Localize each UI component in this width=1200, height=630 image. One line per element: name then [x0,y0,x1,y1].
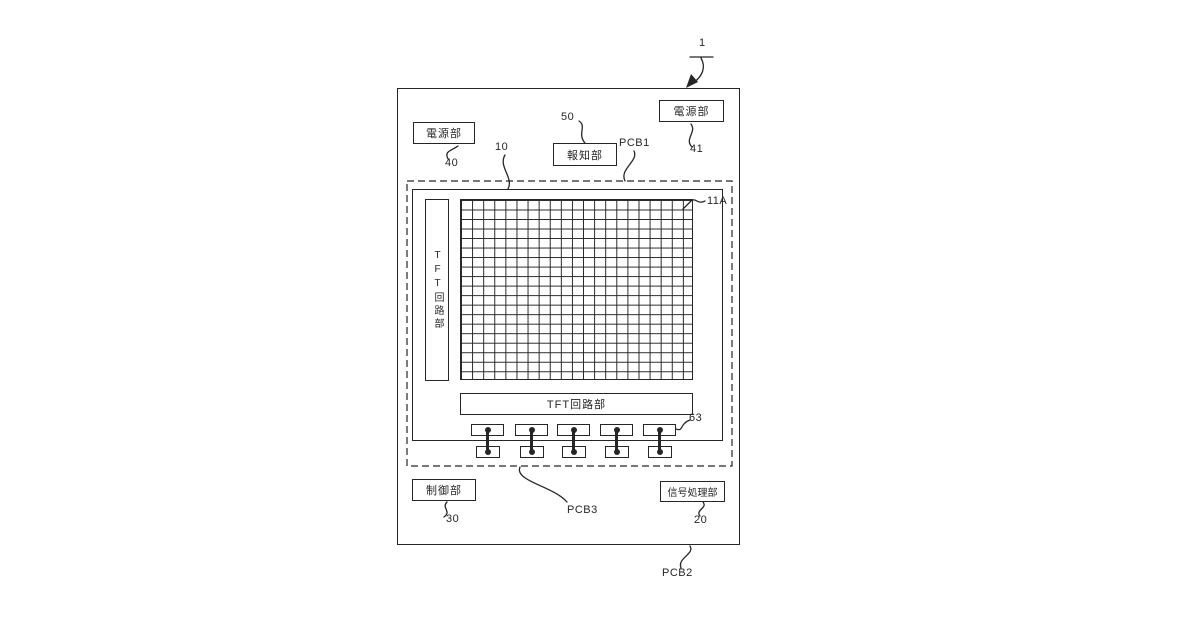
pixel-array-grid [460,199,693,380]
power-supply-right-label: 電源部 [674,103,710,119]
connector-dot [571,427,577,433]
controller-box: 制御部 [412,479,476,501]
leader-pcb2 [680,546,690,568]
ref-1-arrowhead-icon [686,74,698,88]
ref-63: 63 [689,412,702,424]
ref-device-1: 1 [699,37,706,49]
ref-11a: 11A [707,195,727,207]
ref-41: 41 [690,143,703,155]
connector-pair [600,424,633,458]
notifier-box: 報知部 [553,143,617,166]
connector-dot [529,427,535,433]
signal-processor-box: 信号処理部 [660,481,725,502]
tft-data-circuit-label: TFT回路部 [547,396,606,412]
ref-pcb2: PCB2 [662,567,693,579]
connector-dot [485,427,491,433]
ref-pcb3: PCB3 [567,504,598,516]
tft-data-circuit-box: TFT回路部 [460,393,693,415]
tft-gate-circuit-box: TFT回路部 [425,199,449,381]
tft-gate-circuit-label: TFT回路部 [432,250,442,331]
connector-dot [657,449,663,455]
controller-label: 制御部 [426,482,462,498]
power-supply-left-label: 電源部 [426,125,462,141]
connector-dot [657,427,663,433]
ref-10: 10 [495,141,508,153]
power-supply-right-box: 電源部 [659,100,724,122]
power-supply-left-box: 電源部 [413,122,475,144]
connector-dot [614,427,620,433]
ref-50: 50 [561,111,574,123]
connector-pair [471,424,504,458]
connector-pair [557,424,590,458]
connector-dot [614,449,620,455]
ref-pcb1: PCB1 [619,137,650,149]
connector-dot [571,449,577,455]
ref-40: 40 [445,157,458,169]
connector-pair [643,424,676,458]
connector-pair [515,424,548,458]
ref-20: 20 [694,514,707,526]
connector-dot [529,449,535,455]
ref-30: 30 [446,513,459,525]
patent-figure: TFT回路部 TFT回路部 電源部 電源部 報知部 制御部 信号処理部 1 40… [0,0,1200,630]
signal-processor-label: 信号処理部 [668,484,718,499]
notifier-label: 報知部 [567,147,603,163]
connector-dot [485,449,491,455]
